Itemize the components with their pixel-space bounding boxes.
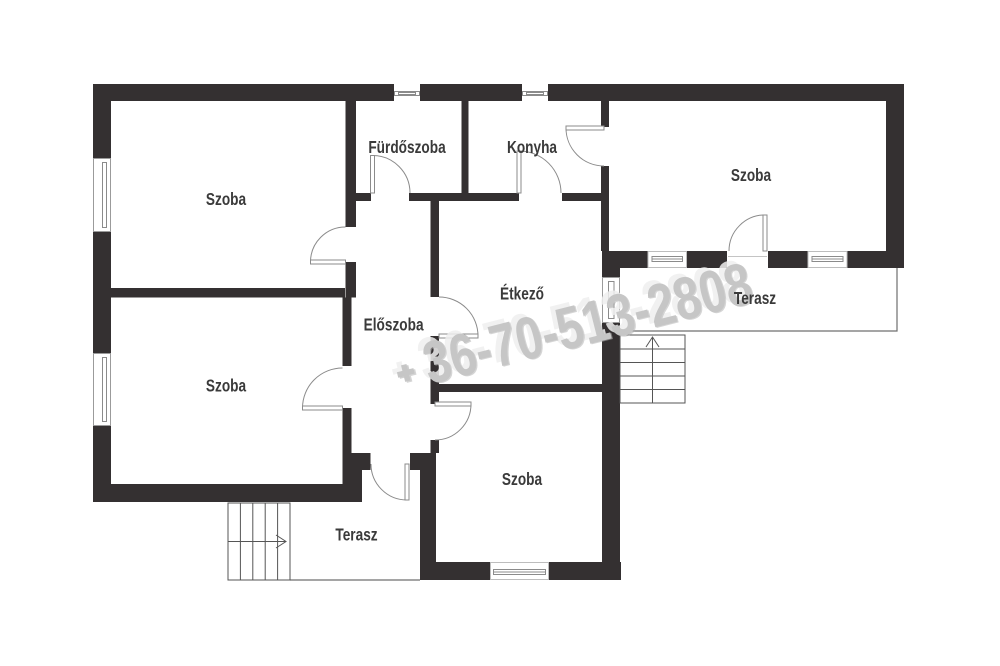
svg-text:Előszoba: Előszoba xyxy=(364,316,424,335)
svg-text:Terasz: Terasz xyxy=(335,526,377,545)
svg-text:Étkező: Étkező xyxy=(500,283,544,304)
svg-text:Fürdőszoba: Fürdőszoba xyxy=(368,139,446,158)
svg-text:Szoba: Szoba xyxy=(502,471,542,490)
svg-text:Terasz: Terasz xyxy=(734,290,776,309)
svg-text:Szoba: Szoba xyxy=(731,167,771,186)
svg-text:Konyha: Konyha xyxy=(507,139,557,158)
svg-text:Szoba: Szoba xyxy=(206,377,246,396)
svg-text:Szoba: Szoba xyxy=(206,191,246,210)
